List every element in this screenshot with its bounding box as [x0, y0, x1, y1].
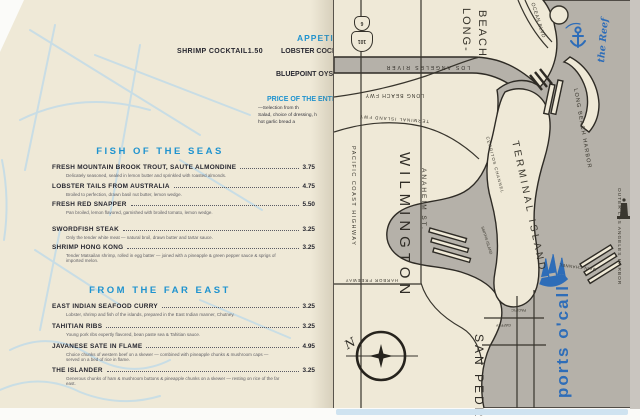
item-name: JAVANESE SATE IN FLAME: [52, 343, 142, 350]
menu-item-row: FRESH MOUNTAIN BROOK TROUT, SAUTE ALMOND…: [52, 158, 315, 178]
map-label-long-beach: LONG-: [460, 8, 472, 53]
menu-item-row: JAVANESE SATE IN FLAME 4.95 Choice chunk…: [52, 337, 315, 363]
item-description: Tender Matsailan shrimp, rolled in egg b…: [66, 253, 281, 264]
map-label-harbor-freeway: HARBOR FREEWAY: [345, 278, 398, 283]
map-label-long-beach-fwy: LONG BEACH FWY: [365, 92, 424, 98]
map-label-long-beach: BEACH: [476, 10, 488, 58]
map-label-san-pedro: SAN PEDRO: [472, 334, 486, 420]
map-label-gaffey-street: GAFFEY: [496, 323, 511, 327]
route-number: 101: [358, 39, 366, 45]
bottom-page-edge: [336, 409, 628, 415]
shrimp-cocktail-name: SHRIMP COCKTAIL: [177, 48, 248, 55]
dot-leader: [123, 220, 299, 231]
route-number: 6: [361, 21, 364, 27]
map-label-pacific-coast-highway: PACIFIC COAST HIGHWAY: [350, 146, 356, 246]
item-name: FRESH RED SNAPPER: [52, 201, 127, 208]
item-description: Generous chunks of ham & mushroom button…: [66, 376, 281, 387]
map-label-pacific-street: PACIFIC: [511, 308, 526, 312]
item-name: SWORDFISH STEAK: [52, 226, 119, 233]
dot-leader: [106, 317, 298, 328]
page-edge-strip: [630, 0, 640, 409]
dot-leader: [146, 337, 298, 348]
shrimp-cocktail-line: SHRIMP COCKTAIL 1.50: [177, 48, 263, 55]
item-name: SHRIMP HONG KONG: [52, 244, 123, 251]
item-description: Pan broiled, lemon flavored, garnished w…: [66, 210, 281, 216]
item-name: FRESH MOUNTAIN BROOK TROUT, SAUTE ALMOND…: [52, 164, 236, 171]
item-name: THE ISLANDER: [52, 367, 103, 374]
dot-leader: [240, 158, 298, 169]
map-label-wilmington: WILMINGTON: [396, 152, 413, 299]
scanned-menu-and-map: SHRIMP COCKTAIL 1.50 APPETIZ LOBSTER COC…: [0, 0, 640, 420]
section-heading-fish: FISH OF THE SEAS: [50, 146, 270, 157]
map-label-anaheim-st: ANAHEIM ST.: [420, 168, 427, 231]
menu-item-row: THE ISLANDER 3.25 Generous chunks of ham…: [52, 361, 315, 387]
menu-item-row: TAHITIAN RIBS 3.25 Young pork ribs exper…: [52, 317, 315, 337]
item-name: TAHITIAN RIBS: [52, 323, 102, 330]
menu-page: SHRIMP COCKTAIL 1.50 APPETIZ LOBSTER COC…: [0, 0, 333, 408]
dot-leader: [131, 195, 299, 206]
dot-leader: [107, 361, 299, 372]
map-label-los-angeles-river: LOS ANGELES RIVER: [385, 64, 470, 70]
item-name: LOBSTER TAILS FROM AUSTRALIA: [52, 183, 170, 190]
map-label-outer-los-angeles-harbor: OUTER LOS ANGELES HARBOR: [616, 188, 621, 285]
map-label-ports-o-call: ports o'call: [553, 284, 573, 398]
page-fold-shadow: [311, 0, 333, 408]
dot-leader: [162, 297, 299, 308]
dot-leader: [127, 238, 298, 249]
menu-item-row: FRESH RED SNAPPER 5.50 Pan broiled, lemo…: [52, 195, 315, 215]
harbor-map-page: LONG- BEACH OCEAN BLVD the Reef LOS ANGE…: [333, 0, 630, 408]
traffic-circle: [550, 6, 568, 24]
item-name: EAST INDIAN SEAFOOD CURRY: [52, 303, 158, 310]
section-heading-far-east: FROM THE FAR EAST: [50, 285, 270, 296]
menu-item-row: SHRIMP HONG KONG 3.25 Tender Matsailan s…: [52, 238, 315, 264]
shrimp-cocktail-price: 1.50: [248, 48, 263, 55]
dot-leader: [174, 177, 299, 188]
menu-item-row: EAST INDIAN SEAFOOD CURRY 3.25 Lobster, …: [52, 297, 315, 317]
